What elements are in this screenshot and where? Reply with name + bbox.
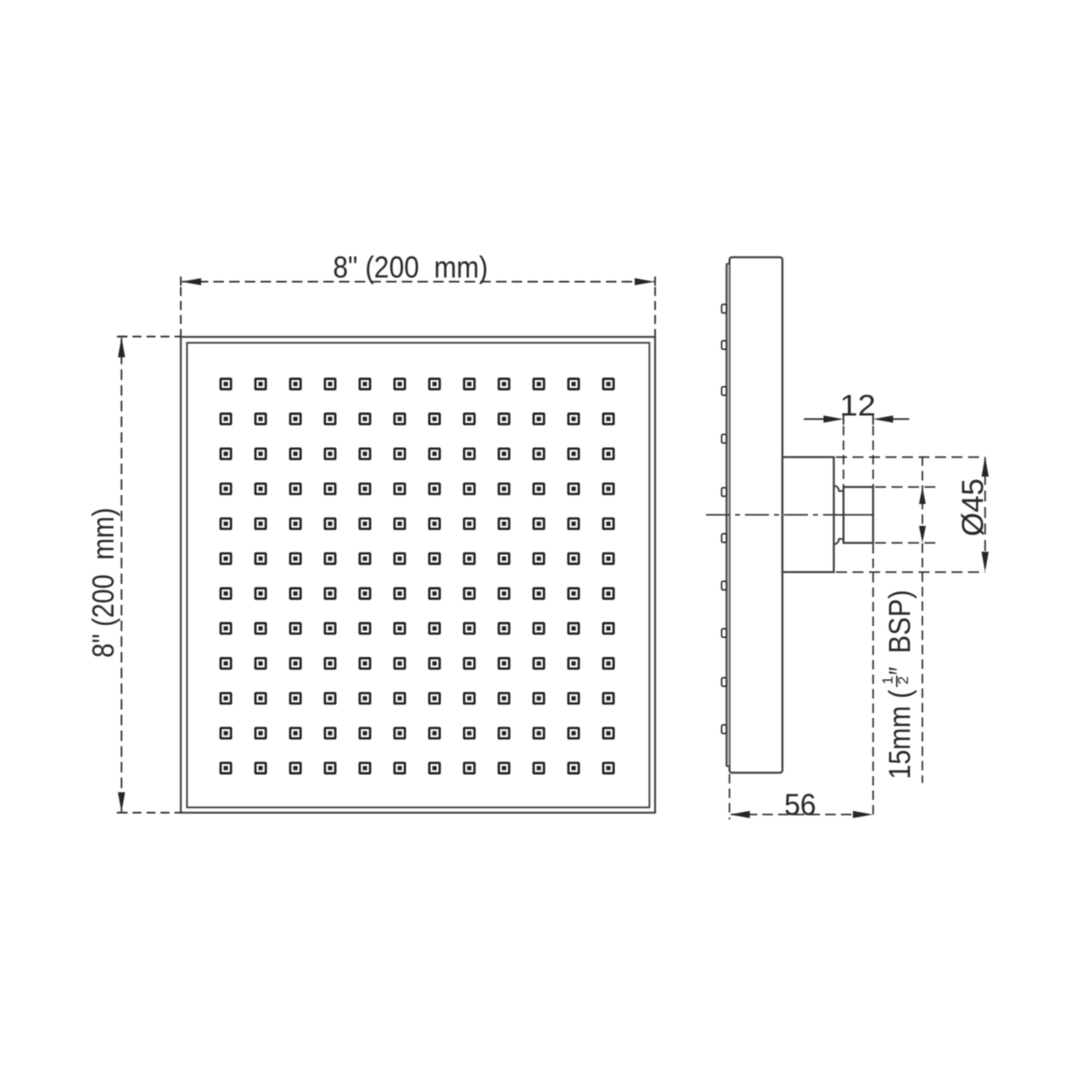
svg-text:″: ″ bbox=[882, 667, 917, 675]
svg-text:8" (200 mm): 8" (200 mm) bbox=[333, 250, 488, 285]
svg-text:56: 56 bbox=[784, 787, 816, 822]
svg-text:Ø45: Ø45 bbox=[955, 478, 990, 536]
svg-text:12: 12 bbox=[840, 390, 876, 423]
svg-text:15mm (: 15mm ( bbox=[882, 689, 917, 779]
svg-text:8" (200 mm): 8" (200 mm) bbox=[86, 508, 121, 658]
svg-text:BSP): BSP) bbox=[882, 590, 917, 661]
svg-text:1: 1 bbox=[880, 676, 897, 684]
